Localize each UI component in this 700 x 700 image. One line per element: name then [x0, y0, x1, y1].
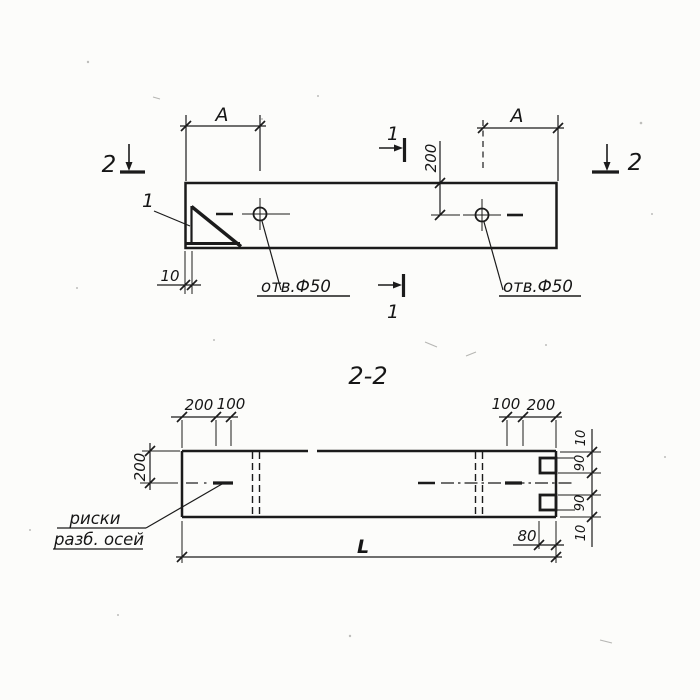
section-marker-1-bottom: 1	[378, 274, 404, 323]
dim-A-left-label: A	[214, 104, 229, 126]
dim-200-label: 200	[422, 144, 440, 173]
end-notch-upper	[540, 458, 556, 473]
dim-A-right-label: A	[509, 105, 524, 127]
detail-callout-label: 1	[142, 190, 154, 212]
arrow-down-icon	[126, 162, 133, 171]
section-view: 2-2	[53, 362, 601, 563]
dim-100-label: 100	[217, 395, 246, 413]
dim-200-plan: 200	[422, 141, 460, 220]
arrow-right-icon	[394, 145, 403, 152]
scan-noise	[29, 61, 666, 643]
dim-10-label: 10	[574, 525, 589, 542]
hole-note-right-label: отв.Ф50	[503, 277, 573, 296]
section-2-label: 2	[628, 150, 643, 176]
dim-10-plan: 10	[157, 251, 201, 294]
dim-top-left: 200 100	[171, 395, 245, 448]
dim-80-label: 80	[517, 527, 536, 545]
section-2-label: 2	[102, 152, 117, 178]
detail-callout-1: 1	[142, 190, 190, 226]
dim-200-label: 200	[131, 453, 149, 482]
dim-length-L: L	[176, 521, 562, 563]
dim-10-label: 10	[160, 267, 179, 285]
hole-note-right: отв.Ф50	[484, 222, 581, 296]
dim-A-left: A	[180, 104, 266, 181]
arrow-down-icon	[604, 162, 611, 171]
dim-200-label: 200	[185, 396, 214, 414]
section-title: 2-2	[348, 362, 387, 390]
section-1-label: 1	[387, 123, 399, 145]
section-marker-2-right: 2	[592, 144, 642, 176]
section-marker-2-left: 2	[102, 144, 145, 178]
dim-10-label: 10	[574, 430, 589, 447]
hole-note-left: отв.Ф50	[257, 221, 350, 296]
end-notch-lower	[540, 495, 556, 510]
dim-right-stack: 10 90 90 10	[557, 429, 601, 547]
plan-view: 1 A	[102, 104, 643, 323]
axis-note-line2: разб. осей	[53, 530, 144, 549]
axis-note-line1: риски	[69, 509, 121, 528]
hole-note-left-label: отв.Ф50	[261, 277, 331, 296]
section-beam-outline	[182, 451, 556, 517]
dim-200-label: 200	[527, 396, 556, 414]
leader-line	[146, 484, 222, 528]
section-marker-1-top: 1	[379, 123, 405, 162]
drawing-sheet: 1 A	[0, 0, 700, 700]
dim-90-label: 90	[573, 495, 588, 512]
hole-left	[216, 198, 290, 230]
dim-90-label: 90	[573, 455, 588, 472]
section-1-label: 1	[387, 301, 399, 323]
hidden-joint-lines-left	[253, 452, 260, 516]
hidden-joint-lines-right	[476, 452, 483, 516]
dim-100-label: 100	[492, 395, 521, 413]
dim-top-right: 100 200	[492, 395, 562, 448]
dim-A-right: A	[477, 105, 564, 181]
corner-plate-detail	[186, 206, 241, 247]
hole-right	[463, 199, 523, 231]
dim-L-label: L	[357, 536, 369, 558]
technical-drawing-svg: 1 A	[0, 0, 700, 700]
arrow-right-icon	[393, 282, 402, 289]
